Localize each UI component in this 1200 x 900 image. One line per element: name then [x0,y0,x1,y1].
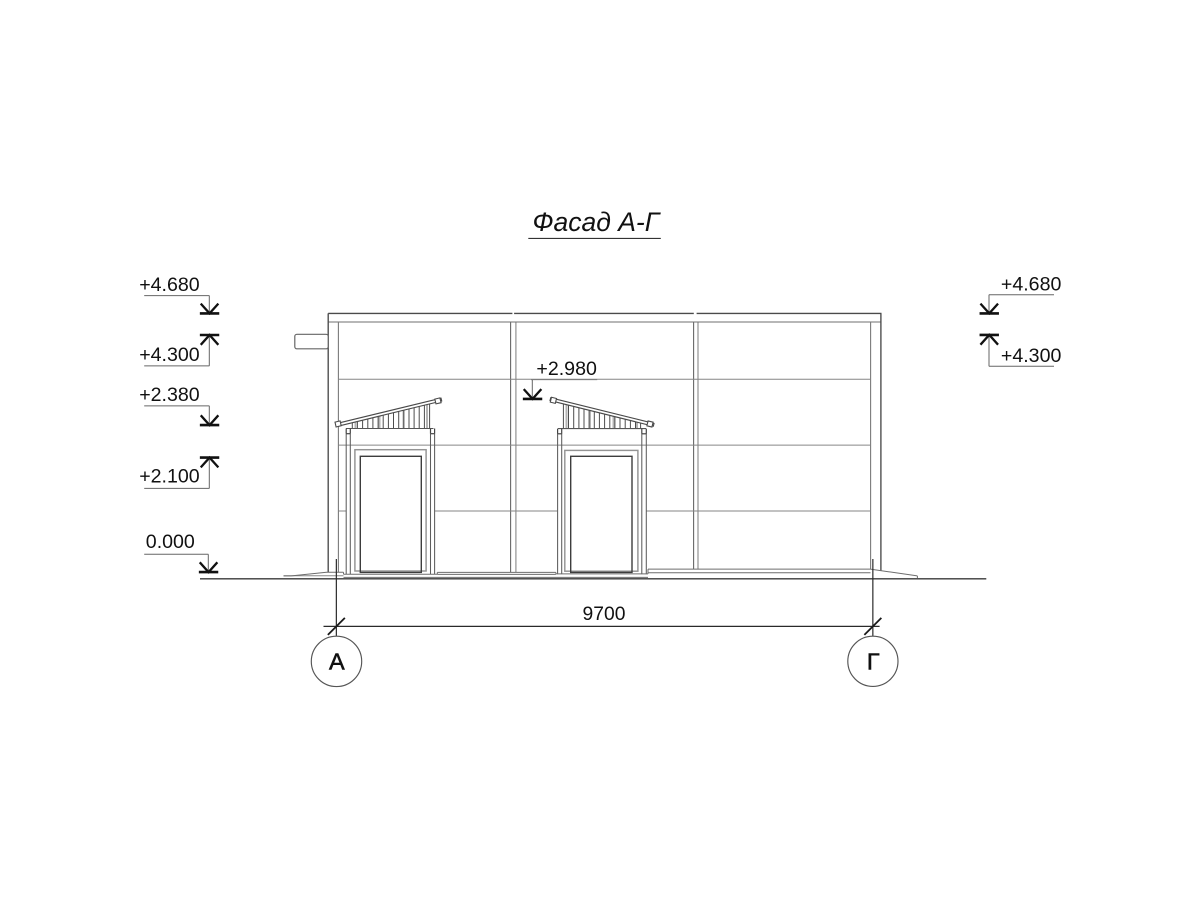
svg-text:Г: Г [867,648,880,674]
svg-text:+4.300: +4.300 [1001,345,1062,367]
svg-text:9700: 9700 [583,604,626,625]
svg-text:+2.980: +2.980 [536,358,597,380]
svg-text:+2.100: +2.100 [139,465,200,487]
svg-text:А: А [329,649,345,675]
svg-text:Фасад А-Г: Фасад А-Г [532,207,661,237]
svg-text:+2.380: +2.380 [139,384,200,406]
svg-text:+4.680: +4.680 [1001,274,1062,296]
svg-text:0.000: 0.000 [146,531,195,553]
svg-text:+4.680: +4.680 [139,274,200,296]
svg-text:+4.300: +4.300 [139,344,200,366]
